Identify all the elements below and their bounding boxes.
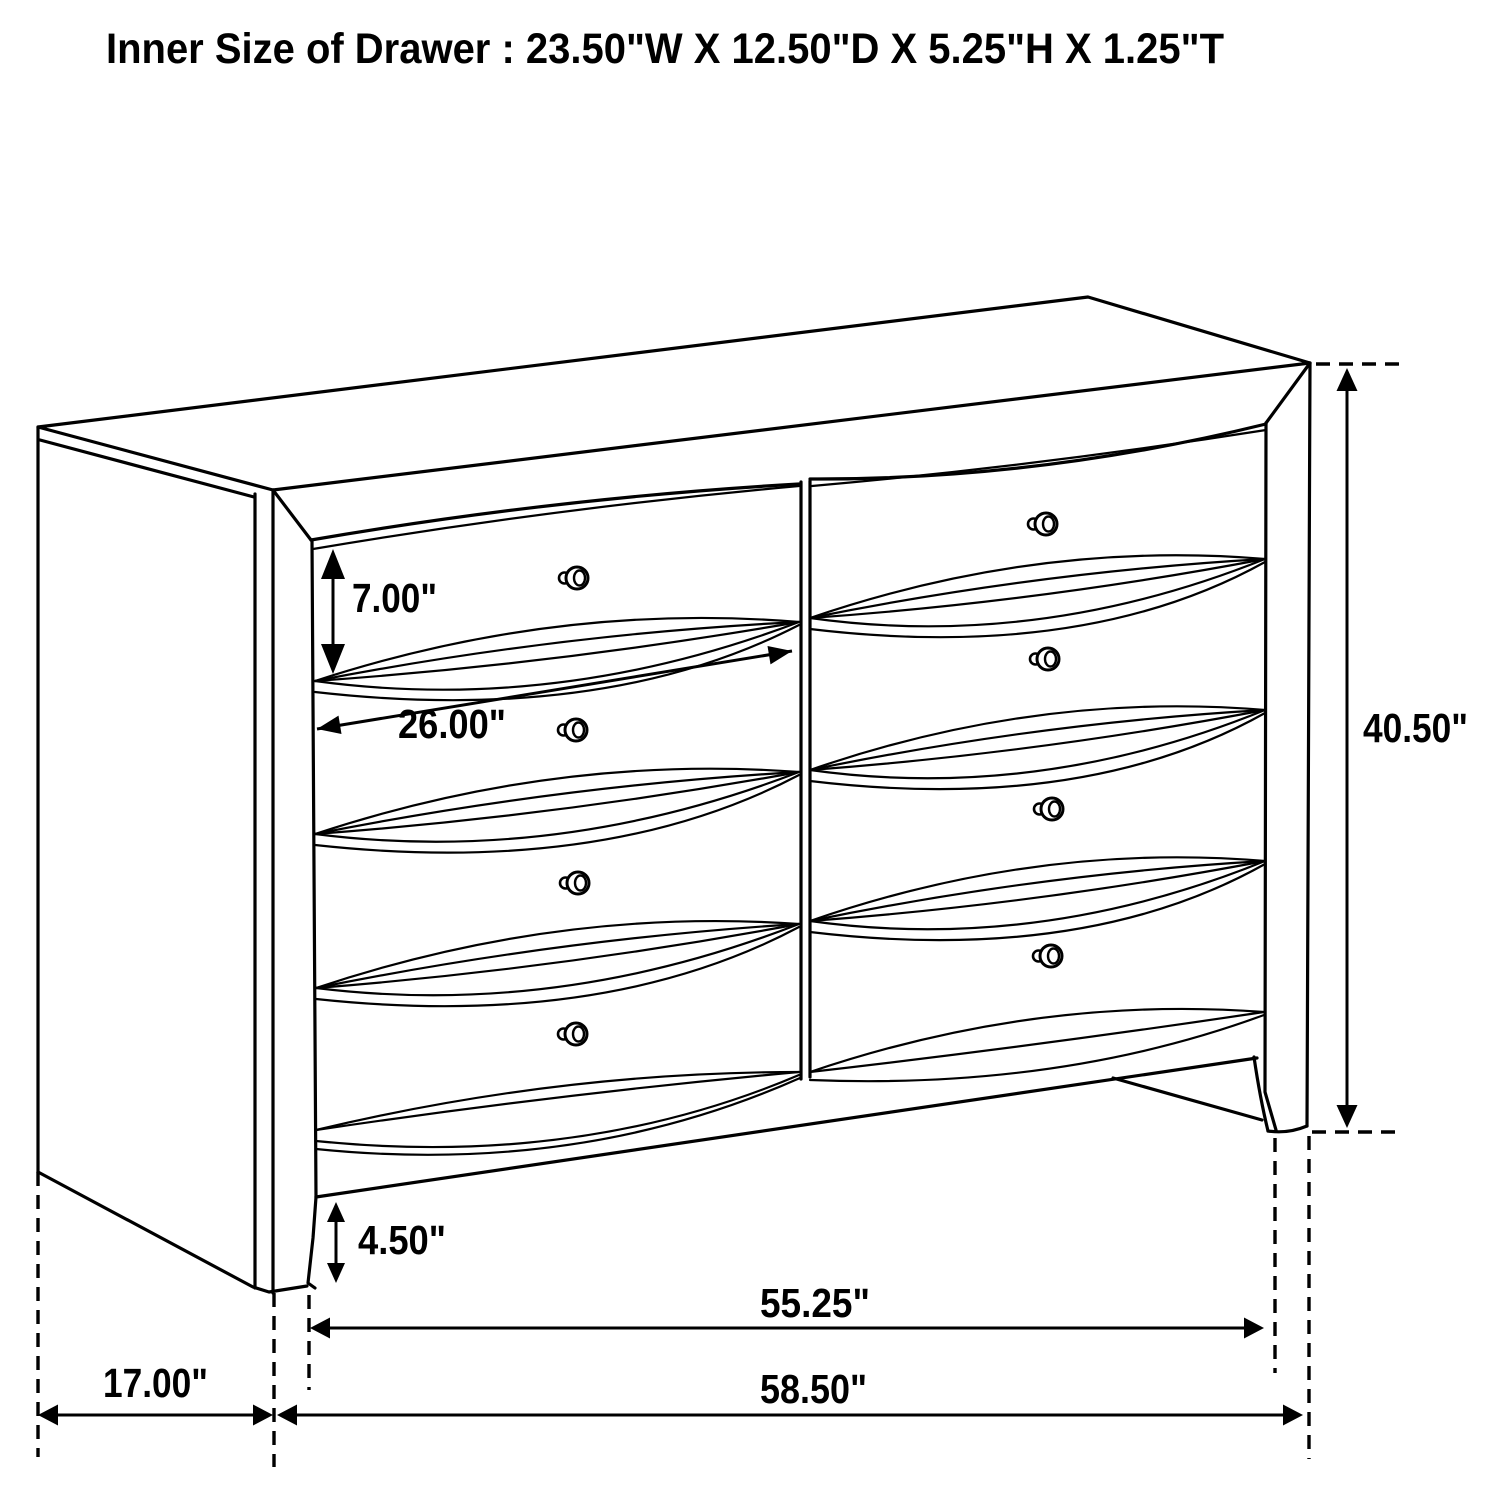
svg-text:58.50": 58.50" xyxy=(760,1366,867,1412)
svg-text:26.00": 26.00" xyxy=(398,701,506,747)
svg-text:7.00": 7.00" xyxy=(352,575,437,621)
svg-text:Inner Size of Drawer : 23.50"W: Inner Size of Drawer : 23.50"W X 12.50"D… xyxy=(106,25,1224,73)
svg-text:40.50": 40.50" xyxy=(1363,705,1468,751)
svg-text:55.25": 55.25" xyxy=(760,1280,870,1326)
svg-text:4.50": 4.50" xyxy=(358,1217,446,1263)
svg-text:17.00": 17.00" xyxy=(103,1360,208,1406)
